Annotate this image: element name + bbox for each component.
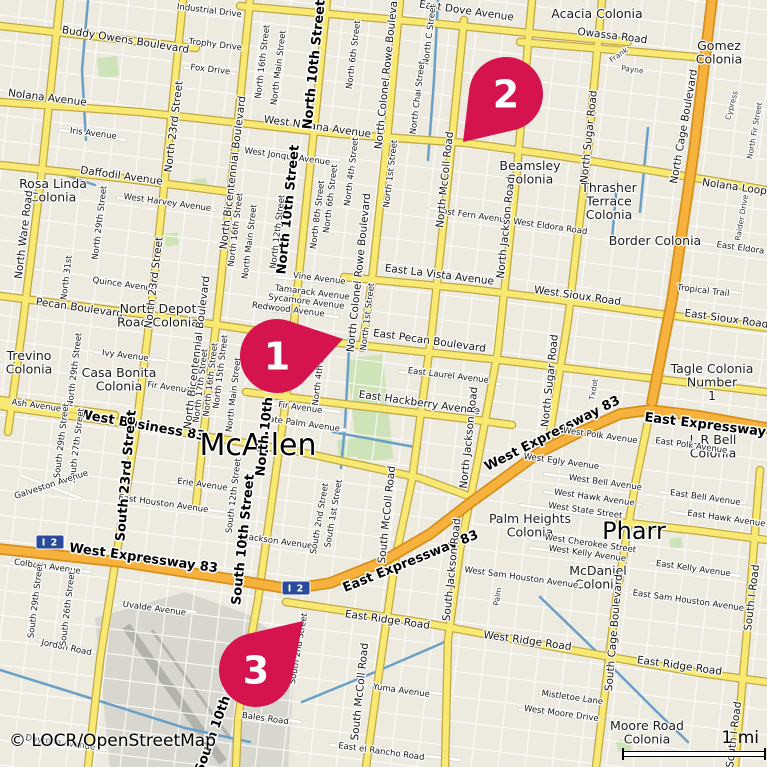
map-label: East Laurel Avenue [407, 366, 489, 386]
map-label: Txdot [587, 378, 600, 402]
map-label: Mistletoe Lane [541, 689, 604, 708]
map-attribution: © LOCR/OpenStreetMap [9, 731, 216, 751]
map-label: East el Rancho Road [338, 741, 425, 763]
map-label: Fox Drive [190, 63, 231, 78]
map-label: North 29th Street [91, 184, 110, 260]
map-label: Acacia Colonia [551, 6, 642, 21]
map-label: Payne [621, 63, 645, 75]
map-marker-2[interactable]: 2 [463, 57, 543, 142]
map-label: TrevinoColonia [6, 348, 53, 377]
marker-number: 2 [493, 73, 519, 117]
map-label: North 23rd Street [162, 80, 185, 173]
scale-bar [623, 751, 765, 757]
map-label: West Moore Drive [523, 704, 599, 724]
marker-number: 1 [264, 335, 290, 379]
marker-number: 3 [243, 649, 269, 693]
map-label: North DepotRoad Colonia [117, 301, 199, 330]
map-label: South 29th Street [26, 562, 45, 639]
map-label: East Bell Avenue [669, 488, 741, 508]
map-label: Tropical Trail [676, 283, 730, 299]
map-label: Nolana Loop [701, 177, 767, 198]
map-label: Palm [492, 587, 504, 606]
map-label: North 4th Street [343, 136, 361, 206]
map-label: North 6th Street [345, 19, 363, 89]
interstate-shield: I 2 [36, 535, 64, 549]
map-label: Jackson Avenue [245, 532, 313, 551]
map-label: South I Road [742, 564, 762, 632]
map-label: Yuma Avenue [371, 682, 430, 700]
map-label: East Sioux Road [684, 307, 767, 331]
scale-label: 1 mi [623, 728, 765, 748]
map-label: ThrasherTerraceColonia [580, 180, 637, 222]
map-label: North 31st [59, 254, 74, 301]
map-label: North Chai Street [409, 60, 428, 135]
scale-control: 1 mi [623, 728, 765, 757]
svg-text:I 2: I 2 [42, 538, 58, 549]
map-label: Pharr [602, 517, 666, 545]
map-label: North Main Street [269, 29, 288, 106]
map-label: East Sam Houston Avenue [632, 588, 745, 614]
svg-text:I 2: I 2 [288, 584, 304, 595]
map-label: GomezColonia [696, 38, 743, 67]
map-label: Raider Drive [733, 193, 750, 241]
street-map: I 2I 2 Industrial DriveBuddy Owens Boule… [0, 0, 767, 767]
map-label: Erie Avenue [176, 477, 228, 494]
interstate-shield: I 2 [282, 581, 310, 595]
map-label: North Main Street [240, 203, 259, 280]
map-canvas[interactable]: I 2I 2 Industrial DriveBuddy Owens Boule… [0, 0, 767, 767]
map-label: Border Colonia [609, 233, 701, 248]
map-label: West Ridge Road [483, 629, 573, 653]
